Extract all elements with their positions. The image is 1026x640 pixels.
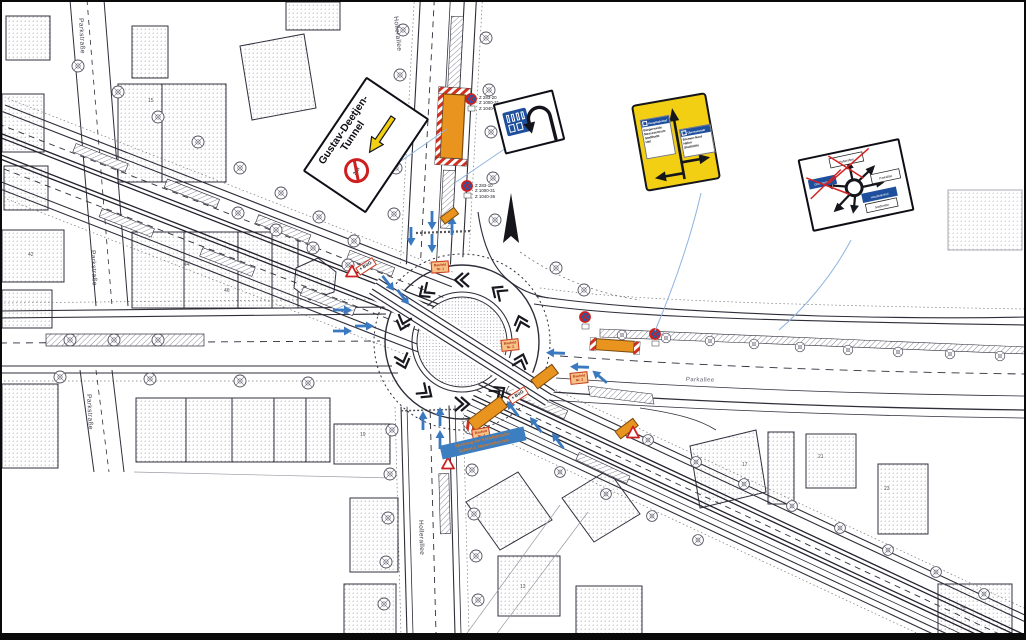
detour-panel-right: Überseestadt Bremen-Nord Häfen Stadtmitt… [679, 124, 716, 158]
road-south [395, 405, 469, 635]
detour-panel-left-body: Bürgerweide Messezentrum Stadthalle Hbf [642, 123, 673, 146]
street-label-parkallee: Parkallee [686, 377, 715, 384]
street-label-hollerallee-bottom: Hollerallee [417, 520, 425, 555]
detour-direction-sign: Hauptbahnhof Bürgerweide Messezentrum St… [631, 92, 721, 192]
house-number: 17 [742, 462, 748, 468]
house-number: 44 [184, 262, 190, 268]
uturn-arrow-icon [517, 95, 561, 148]
house-number: 15 [148, 98, 154, 104]
house-number: 19 [360, 432, 366, 438]
sign-code: Z 1000-31 [475, 188, 495, 193]
house-number: 42 [28, 252, 34, 258]
site-plan-basemap [0, 0, 1026, 640]
baufeld-marker-1: Baufeld Nr. 1 [431, 260, 450, 273]
sign-codes-north-lower: Z 283-10 Z 1000-31 Z 1040-36 [475, 183, 495, 199]
baufeld-marker-2: Baufeld Nr. 2 [500, 338, 520, 352]
marker-line: Nr. 1 [434, 267, 447, 272]
house-number: 23 [884, 486, 890, 492]
road-east [478, 212, 1026, 430]
house-number: 46 [224, 288, 230, 294]
house-number: 21 [818, 454, 824, 460]
station-icon [642, 121, 648, 127]
traffic-plan-canvas: Hollerallee Hollerallee Parkstraße Parks… [0, 0, 1026, 640]
weight-restriction-label: 3,5t [352, 166, 360, 175]
baufeld-marker-3: Baufeld Nr. 3 [569, 371, 589, 385]
harbour-icon [681, 130, 687, 136]
house-number: 13 [520, 584, 526, 590]
sign-code: Z 1040-36 [475, 194, 495, 199]
house-number: 25 [960, 606, 966, 612]
north-arrow [503, 193, 519, 243]
